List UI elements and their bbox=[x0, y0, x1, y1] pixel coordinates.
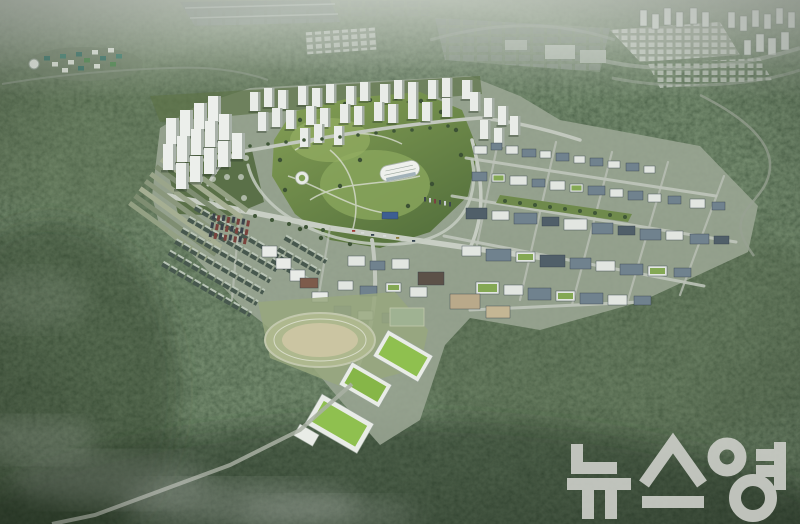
aerial-city-render: 뉴스영 뉴스영 bbox=[0, 0, 800, 524]
render-canvas: 뉴스영 bbox=[0, 0, 800, 524]
